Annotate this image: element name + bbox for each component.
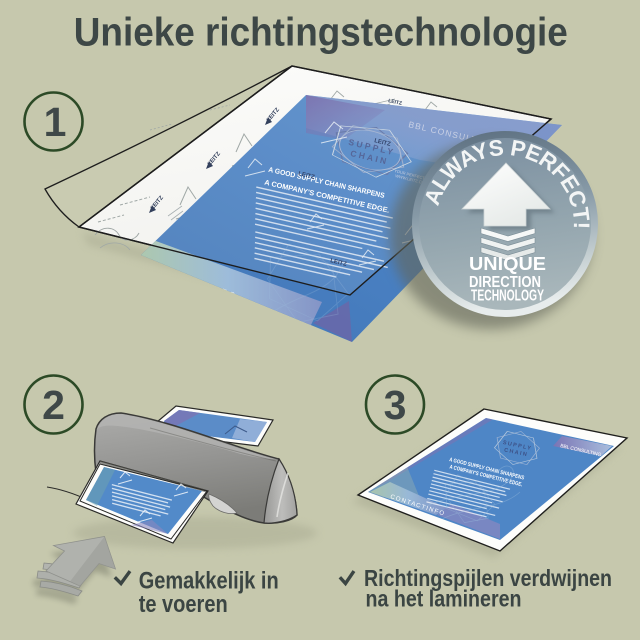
svg-text:na het lamineren: na het lamineren — [366, 586, 522, 612]
svg-text:2: 2 — [42, 382, 65, 428]
svg-text:te voeren: te voeren — [139, 591, 228, 618]
svg-text:Unieke richtingstechnologie: Unieke richtingstechnologie — [74, 11, 568, 55]
svg-text:3: 3 — [384, 382, 407, 428]
svg-text:TECHNOLOGY: TECHNOLOGY — [471, 288, 544, 305]
svg-text:1: 1 — [44, 99, 67, 145]
svg-text:UNIQUE: UNIQUE — [469, 253, 546, 274]
